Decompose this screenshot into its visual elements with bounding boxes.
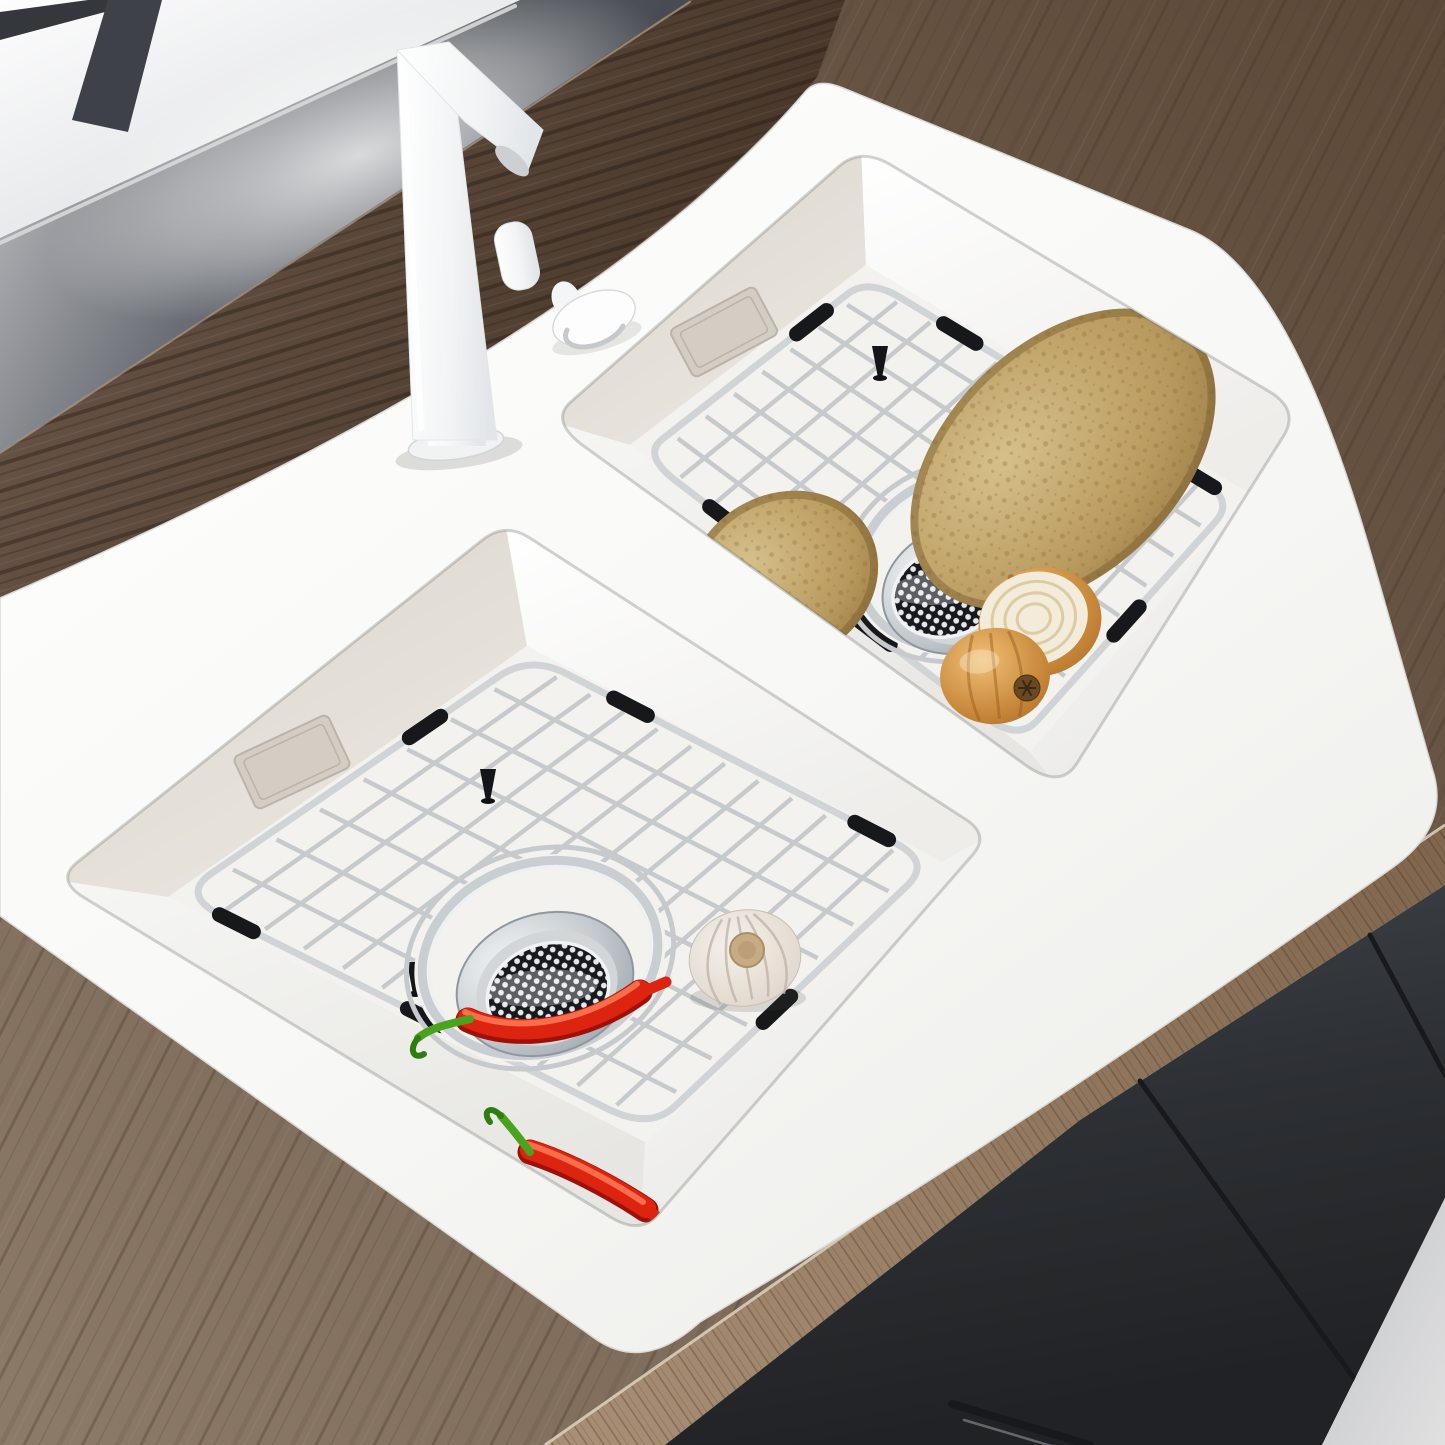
scene bbox=[0, 0, 1445, 1445]
grid-foot-tip bbox=[481, 798, 495, 804]
grid-foot-tip bbox=[873, 375, 887, 381]
garlic-cut-stem-core bbox=[738, 941, 756, 959]
product-photo-stage: White double-bowl drop-in kitchen sink w… bbox=[0, 0, 1445, 1445]
